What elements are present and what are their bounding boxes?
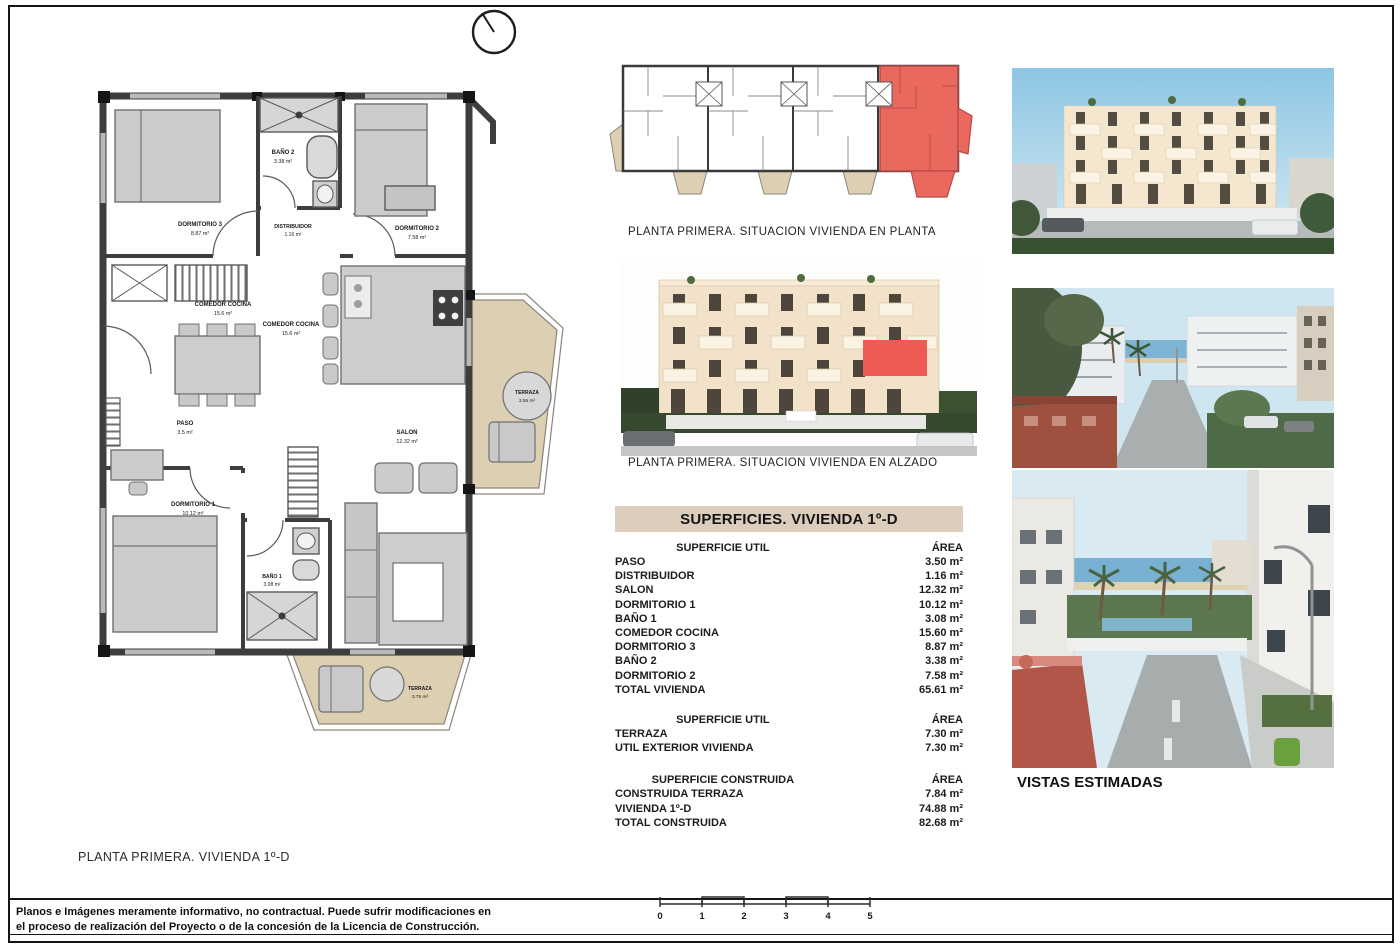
- room-area: 1.16 m²: [285, 232, 302, 238]
- room-label: DORMITORIO 2: [395, 226, 440, 232]
- room-area: 10.12 m²: [182, 511, 203, 517]
- footer-inner-line: [8, 934, 1394, 935]
- room-area: 3.38 m²: [274, 159, 292, 165]
- room-area: 3.75 m²: [412, 694, 429, 700]
- green-bin: [1274, 738, 1300, 766]
- surfaces-section-util: SUPERFICIE UTIL ÁREA PASO3.50 m² DISTRIB…: [615, 541, 963, 697]
- room-label: COMEDOR COCINA: [263, 322, 320, 328]
- table-row: BAÑO 13.08 m²: [615, 612, 963, 626]
- car: [623, 431, 675, 447]
- room-area: 3.5 m²: [177, 430, 192, 436]
- elevation-render: [621, 263, 977, 456]
- room-label: DISTRIBUIDOR: [274, 224, 312, 230]
- table-row: UTIL EXTERIOR VIVIENDA7.30 m²: [615, 741, 963, 755]
- photo-street-view-2: [1012, 470, 1334, 768]
- photo-building-render: [1012, 68, 1334, 254]
- table-row: TERRAZA7.30 m²: [615, 727, 963, 741]
- scale-label: 3: [783, 911, 788, 922]
- section-header: SUPERFICIE UTIL: [615, 541, 831, 555]
- room-label: BAÑO 2: [272, 149, 295, 156]
- sheet-caption: PLANTA PRIMERA. VIVIENDA 1º-D: [78, 850, 290, 864]
- scale-label: 2: [741, 911, 746, 922]
- table-row: VIVIENDA 1º-D74.88 m²: [615, 802, 963, 816]
- surfaces-section-construida: SUPERFICIE CONSTRUIDA ÁREA CONSTRUIDA TE…: [615, 773, 963, 830]
- site-plan-drawing: [608, 56, 973, 206]
- highlighted-unit: [880, 66, 972, 197]
- car: [1244, 416, 1278, 428]
- scale-label: 0: [657, 911, 662, 922]
- disclaimer-line2: el proceso de realización del Proyecto o…: [16, 921, 479, 933]
- surfaces-table: SUPERFICIES. VIVIENDA 1º-D SUPERFICIE UT…: [615, 506, 963, 830]
- room-area: 12.32 m²: [396, 439, 417, 445]
- site-plan-caption: PLANTA PRIMERA. SITUACION VIVIENDA EN PL…: [628, 226, 936, 238]
- photo-street-view-1: [1012, 288, 1334, 468]
- disclaimer-text: Planos e Imágenes meramente informativo,…: [16, 905, 491, 934]
- room-label: TERRAZA: [408, 686, 432, 692]
- table-row: CONSTRUIDA TERRAZA7.84 m²: [615, 787, 963, 801]
- room-label: PASO: [177, 421, 194, 427]
- area-header: ÁREA: [831, 713, 963, 727]
- table-row: DORMITORIO 27.58 m²: [615, 669, 963, 683]
- area-header: ÁREA: [831, 773, 963, 787]
- table-row: COMEDOR COCINA15.60 m²: [615, 626, 963, 640]
- area-header: ÁREA: [831, 541, 963, 555]
- floorplan-drawing: DORMITORIO 3 8.87 m² BAÑO 2 3.38 m² DORM…: [95, 78, 565, 738]
- scale-label: 4: [825, 911, 831, 922]
- views-label: VISTAS ESTIMADAS: [1017, 774, 1163, 791]
- scale-label: 1: [699, 911, 705, 922]
- room-label: TERRAZA: [515, 390, 539, 396]
- room-area: 8.87 m²: [191, 231, 209, 237]
- table-row: TOTAL VIVIENDA65.61 m²: [615, 683, 963, 697]
- section-header: SUPERFICIE CONSTRUIDA: [615, 773, 831, 787]
- table-row: PASO3.50 m²: [615, 555, 963, 569]
- scale-label: 5: [867, 911, 873, 922]
- room-area: 15.6 m²: [214, 311, 232, 317]
- table-row: TOTAL CONSTRUIDA82.68 m²: [615, 816, 963, 830]
- scale-bar: 0 1 2 3 4 5: [648, 892, 883, 927]
- room-area: 3.08 m²: [264, 582, 281, 588]
- room-area: 3.55 m²: [519, 398, 536, 404]
- surfaces-section-terraza: SUPERFICIE UTIL ÁREA TERRAZA7.30 m² UTIL…: [615, 713, 963, 755]
- table-row: SALON12.32 m²: [615, 583, 963, 597]
- disclaimer-line1: Planos e Imágenes meramente informativo,…: [16, 906, 491, 918]
- room-label: DORMITORIO 1: [171, 502, 216, 508]
- elevation-caption: PLANTA PRIMERA. SITUACION VIVIENDA EN AL…: [628, 457, 937, 469]
- room-label: BAÑO 1: [262, 573, 282, 580]
- plan-sheet: DORMITORIO 3 8.87 m² BAÑO 2 3.38 m² DORM…: [0, 0, 1400, 946]
- bedroom3-furniture: [115, 110, 220, 202]
- room-label: DORMITORIO 3: [178, 222, 223, 228]
- section-header: SUPERFICIE UTIL: [615, 713, 831, 727]
- dining-table: [175, 324, 260, 406]
- surfaces-title: SUPERFICIES. VIVIENDA 1º-D: [615, 506, 963, 532]
- room-label: SALON: [397, 430, 418, 436]
- table-row: BAÑO 23.38 m²: [615, 654, 963, 668]
- north-indicator-icon: [466, 6, 522, 62]
- table-row: DORMITORIO 110.12 m²: [615, 598, 963, 612]
- room-label: COMEDOR COCINA: [195, 302, 252, 308]
- table-row: DORMITORIO 38.87 m²: [615, 640, 963, 654]
- car: [1042, 218, 1084, 232]
- highlighted-unit-elevation: [863, 340, 927, 376]
- bottom-terrace: [287, 655, 471, 730]
- car: [1284, 421, 1314, 432]
- room-area: 15.6 m²: [282, 331, 300, 337]
- car: [1252, 220, 1298, 235]
- room-area: 7.58 m²: [408, 235, 426, 241]
- table-row: DISTRIBUIDOR1.16 m²: [615, 569, 963, 583]
